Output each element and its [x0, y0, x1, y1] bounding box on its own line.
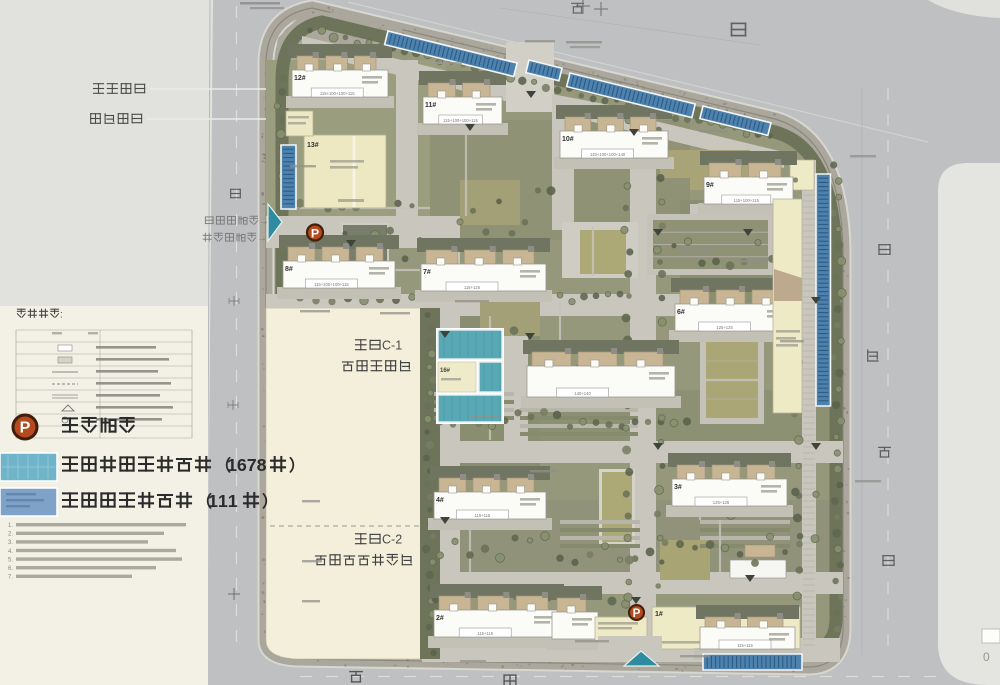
- svg-text:115+125: 115+125: [464, 285, 481, 290]
- svg-text:16#: 16#: [440, 368, 451, 374]
- svg-text:3#: 3#: [674, 484, 682, 491]
- svg-text:115+115: 115+115: [477, 631, 493, 636]
- svg-text:140+140: 140+140: [574, 391, 591, 396]
- svg-text:115+100+100+115: 115+100+100+115: [320, 91, 355, 96]
- svg-text:10#: 10#: [562, 136, 574, 143]
- svg-text:8: 8: [257, 455, 267, 475]
- svg-text:7#: 7#: [423, 269, 431, 276]
- svg-text:115+100+115: 115+100+115: [734, 198, 760, 203]
- svg-text:）: ）: [262, 493, 278, 511]
- svg-text:→: →: [259, 216, 269, 227]
- svg-text:115+115: 115+115: [737, 643, 753, 648]
- svg-text:9#: 9#: [706, 182, 714, 189]
- svg-text:12#: 12#: [294, 75, 306, 82]
- svg-text:1#: 1#: [655, 611, 663, 618]
- svg-text:P: P: [633, 607, 641, 620]
- svg-text:115+115: 115+115: [475, 513, 491, 518]
- svg-text:P: P: [311, 227, 319, 241]
- svg-text:6: 6: [237, 455, 247, 475]
- svg-text:6.: 6.: [8, 566, 13, 572]
- svg-text:）: ）: [289, 457, 305, 475]
- svg-text:2#: 2#: [436, 615, 444, 622]
- svg-text:4.: 4.: [8, 549, 13, 555]
- svg-text:4#: 4#: [436, 497, 444, 504]
- svg-text:1: 1: [218, 491, 228, 511]
- svg-text:11#: 11#: [425, 102, 436, 109]
- svg-text:7.: 7.: [8, 575, 13, 581]
- svg-text:7: 7: [247, 455, 257, 475]
- svg-text:1.: 1.: [8, 523, 13, 529]
- svg-text:→: →: [257, 233, 267, 244]
- svg-text:C-1: C-1: [382, 339, 402, 353]
- svg-text:1: 1: [228, 491, 238, 511]
- svg-text:5.: 5.: [8, 557, 13, 563]
- svg-text:3.: 3.: [8, 540, 13, 546]
- svg-text::: :: [60, 310, 63, 321]
- svg-text:1: 1: [208, 491, 218, 511]
- svg-text:115+100+100+115: 115+100+100+115: [314, 282, 349, 287]
- svg-text:125+125: 125+125: [713, 500, 730, 505]
- svg-text:2.: 2.: [8, 532, 13, 538]
- svg-text:140+100+100+140: 140+100+100+140: [590, 152, 626, 157]
- svg-text:8#: 8#: [285, 266, 293, 273]
- svg-text:125+125: 125+125: [716, 325, 733, 330]
- svg-text:0: 0: [983, 650, 990, 664]
- svg-text:6#: 6#: [677, 309, 685, 316]
- svg-text:115+100+100+115: 115+100+100+115: [443, 118, 478, 123]
- svg-text:P: P: [20, 420, 31, 437]
- svg-text:1: 1: [227, 455, 237, 475]
- svg-text:13#: 13#: [307, 142, 319, 149]
- svg-text:C-2: C-2: [382, 533, 402, 547]
